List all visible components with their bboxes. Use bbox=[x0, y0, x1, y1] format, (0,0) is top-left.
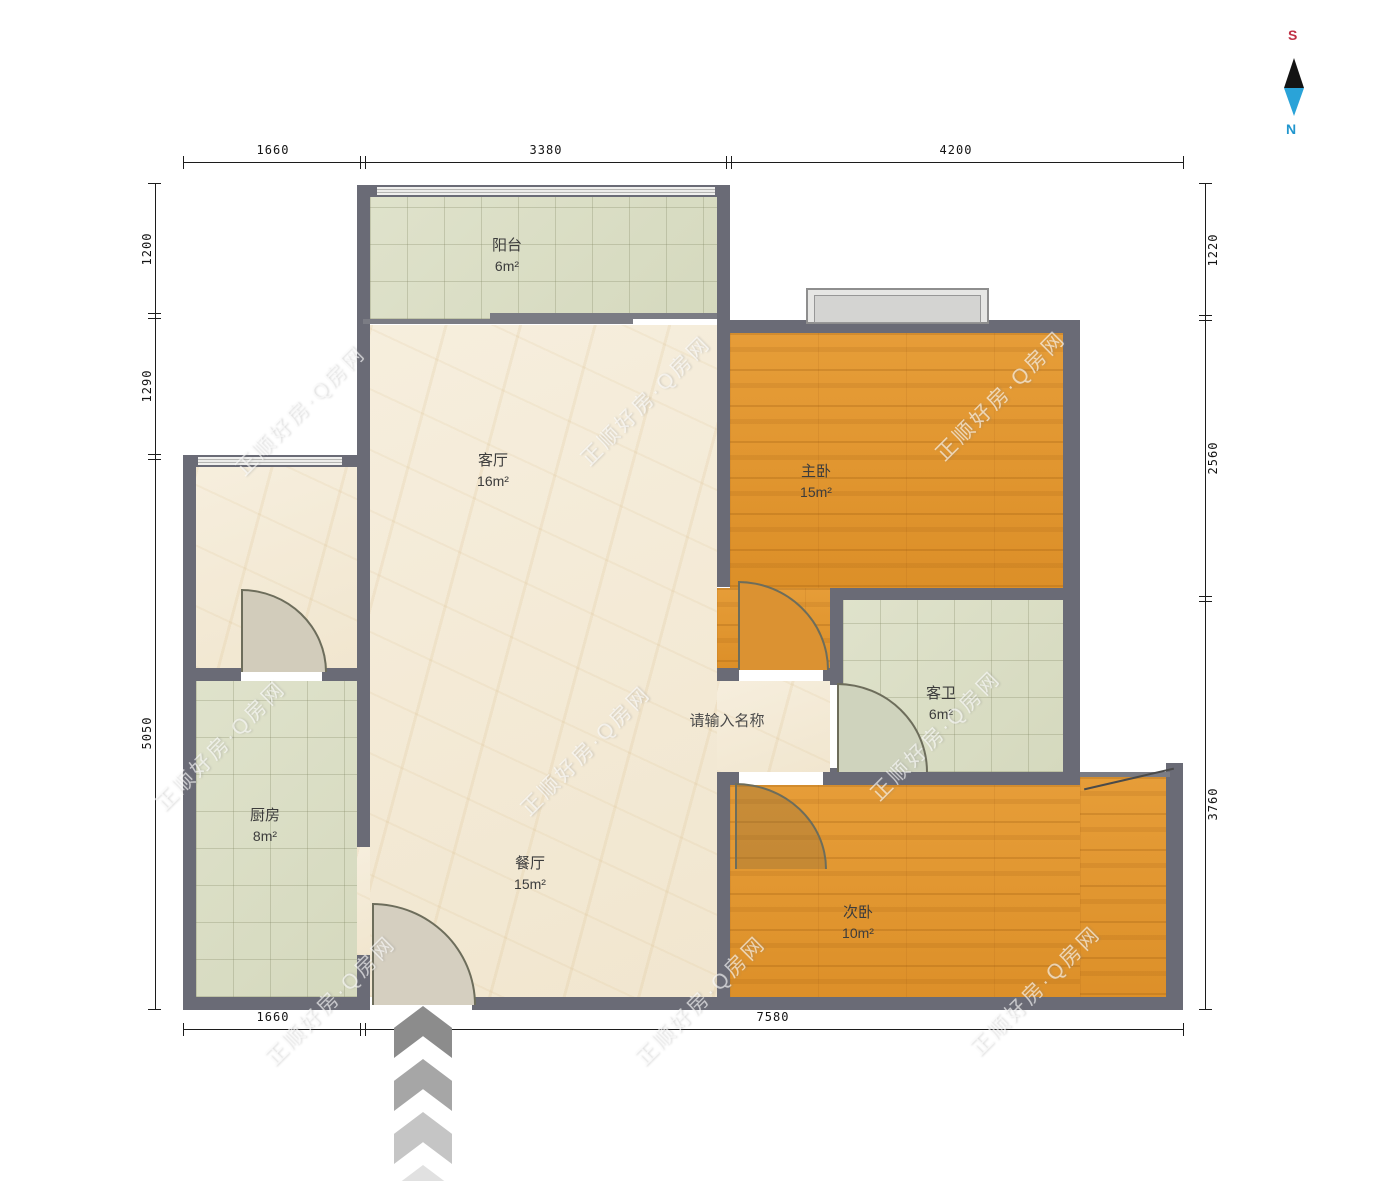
compass-needle-south-icon bbox=[1284, 58, 1304, 88]
dim-tick bbox=[148, 183, 161, 184]
kitchen-passthrough-floor bbox=[357, 847, 370, 955]
room-name: 餐厅 bbox=[514, 854, 546, 874]
sliding-door-rail bbox=[363, 319, 633, 324]
dim-line-bottom bbox=[183, 1029, 1183, 1030]
chevron-up-icon bbox=[394, 1006, 452, 1058]
dim-label: 2560 bbox=[1206, 442, 1220, 475]
dim-tick bbox=[148, 1009, 161, 1010]
dim-tick bbox=[726, 156, 727, 169]
room-label-master-bedroom: 主卧 15m² bbox=[800, 462, 832, 502]
wall-segment bbox=[183, 668, 241, 681]
wall-segment bbox=[322, 668, 370, 681]
dim-tick bbox=[148, 318, 161, 319]
chevron-up-icon bbox=[394, 1165, 452, 1181]
compass-north-label: N bbox=[1286, 121, 1296, 137]
compass-south-label: S bbox=[1288, 27, 1297, 43]
sliding-door-rail bbox=[490, 313, 717, 319]
dim-label: 5050 bbox=[140, 717, 154, 750]
room-label-balcony: 阳台 6m² bbox=[492, 236, 522, 276]
wall-segment bbox=[472, 997, 1183, 1010]
dim-tick bbox=[183, 156, 184, 169]
dim-line-left bbox=[155, 183, 156, 1010]
chevron-up-icon bbox=[394, 1059, 452, 1111]
wall-segment bbox=[1166, 763, 1183, 1010]
second-bedroom-floor-ext bbox=[1080, 777, 1166, 1010]
wall-segment bbox=[183, 997, 368, 1010]
dim-tick bbox=[1183, 156, 1184, 169]
dim-tick bbox=[148, 454, 161, 455]
room-label-living: 客厅 16m² bbox=[477, 451, 509, 491]
wall-segment bbox=[830, 588, 1063, 600]
room-name: 客卫 bbox=[926, 684, 956, 704]
wall-segment bbox=[183, 455, 196, 1010]
room-area: 6m² bbox=[492, 256, 522, 276]
dim-label: 1660 bbox=[257, 143, 290, 157]
room-area: 10m² bbox=[842, 923, 874, 943]
floor-plan-canvas: 1660 3380 4200 1660 7580 1200 1290 5050 … bbox=[0, 0, 1380, 1181]
wall-segment bbox=[717, 668, 739, 681]
dim-label: 1220 bbox=[1206, 234, 1220, 267]
room-label-kitchen: 厨房 8m² bbox=[250, 806, 280, 846]
dim-label: 7580 bbox=[757, 1010, 790, 1024]
room-area: 8m² bbox=[250, 826, 280, 846]
living-dining-floor bbox=[370, 325, 717, 997]
room-area: 16m² bbox=[477, 471, 509, 491]
dim-tick bbox=[1199, 320, 1212, 321]
dim-tick bbox=[1199, 315, 1212, 316]
dim-tick bbox=[1199, 601, 1212, 602]
dim-label: 3760 bbox=[1206, 788, 1220, 821]
dim-tick bbox=[365, 156, 366, 169]
room-name: 阳台 bbox=[492, 236, 522, 256]
dim-label: 1290 bbox=[140, 370, 154, 403]
room-name: 次卧 bbox=[842, 903, 874, 923]
dim-tick bbox=[148, 459, 161, 460]
dim-tick bbox=[1199, 1009, 1212, 1010]
balcony-window bbox=[377, 187, 715, 195]
room-label-second-bedroom: 次卧 10m² bbox=[842, 903, 874, 943]
dim-tick bbox=[1183, 1023, 1184, 1036]
master-bedroom-floor bbox=[730, 333, 1063, 588]
wall-segment bbox=[1063, 320, 1080, 785]
dim-tick bbox=[183, 1023, 184, 1036]
dim-tick bbox=[1199, 183, 1212, 184]
dim-label: 4200 bbox=[940, 143, 973, 157]
dim-label: 1660 bbox=[257, 1010, 290, 1024]
wall-segment bbox=[357, 185, 370, 847]
room-label-dining: 餐厅 15m² bbox=[514, 854, 546, 894]
wall-segment bbox=[717, 185, 730, 325]
wall-segment bbox=[717, 772, 730, 1010]
room-name: 厨房 bbox=[250, 806, 280, 826]
dim-label: 1200 bbox=[140, 233, 154, 266]
dim-tick bbox=[360, 1023, 361, 1036]
wall-segment bbox=[823, 772, 1080, 785]
dim-label: 3380 bbox=[530, 143, 563, 157]
balcony-floor bbox=[370, 197, 717, 319]
wall-segment bbox=[717, 320, 730, 587]
room-area: 6m² bbox=[926, 704, 956, 724]
storage-room-window bbox=[198, 457, 342, 465]
dim-line-top bbox=[183, 162, 1183, 163]
room-area: 15m² bbox=[800, 482, 832, 502]
dim-tick bbox=[365, 1023, 366, 1036]
dim-tick bbox=[1199, 596, 1212, 597]
compass-needle-north-icon bbox=[1284, 88, 1304, 116]
chevron-up-icon bbox=[394, 1112, 452, 1164]
room-label-bathroom: 客卫 6m² bbox=[926, 684, 956, 724]
dim-tick bbox=[148, 313, 161, 314]
room-name-input[interactable]: 请输入名称 bbox=[689, 710, 764, 731]
room-name: 客厅 bbox=[477, 451, 509, 471]
dim-tick bbox=[731, 156, 732, 169]
dim-tick bbox=[360, 156, 361, 169]
bay-window-glass bbox=[814, 295, 981, 323]
room-name: 主卧 bbox=[800, 462, 832, 482]
room-area: 15m² bbox=[514, 874, 546, 894]
